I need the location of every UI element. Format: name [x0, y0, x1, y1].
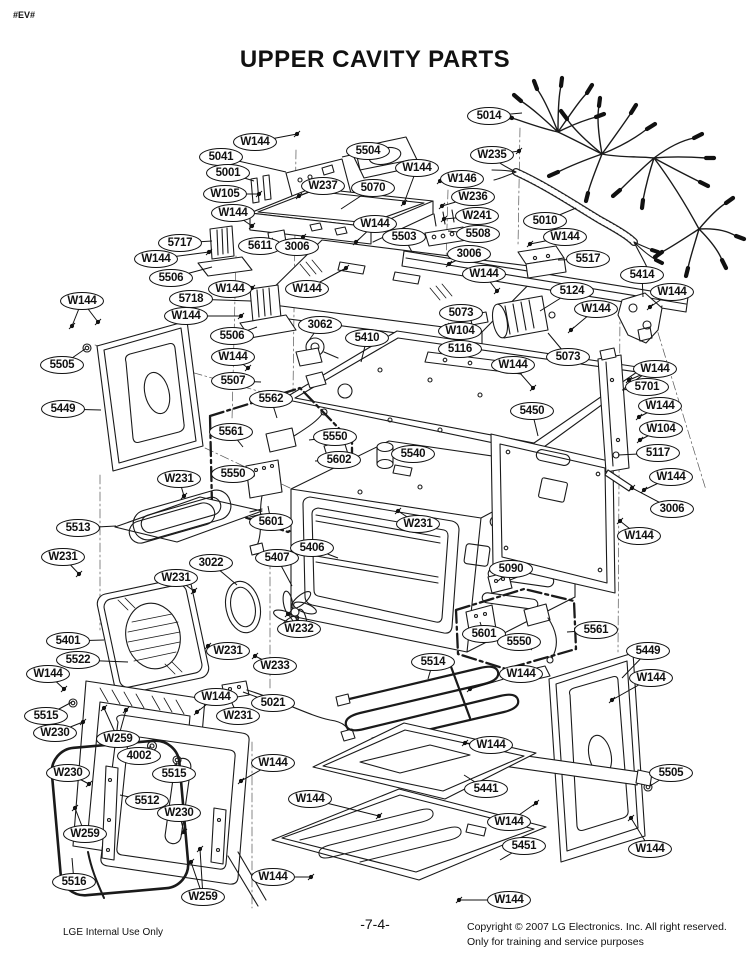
part-callout-W144: W144 — [134, 250, 178, 268]
part-callout-W104: W104 — [639, 420, 683, 438]
part-callout-W144: W144 — [288, 790, 332, 808]
part-callout-W144: W144 — [251, 868, 295, 886]
part-callout-5090: 5090 — [489, 560, 533, 578]
part-callout-W144: W144 — [285, 280, 329, 298]
part-callout-5021: 5021 — [251, 694, 295, 712]
part-callout-5407: 5407 — [255, 549, 299, 567]
part-callout-5540: 5540 — [391, 445, 435, 463]
part-callout-5701: 5701 — [625, 378, 669, 396]
part-callout-5001: 5001 — [206, 164, 250, 182]
part-callout-W105: W105 — [203, 185, 247, 203]
part-callout-W144: W144 — [26, 665, 70, 683]
part-callout-W104: W104 — [438, 322, 482, 340]
part-callout-W144: W144 — [649, 468, 693, 486]
part-callout-W144: W144 — [628, 840, 672, 858]
part-callout-5450: 5450 — [510, 402, 554, 420]
part-callout-3006: 3006 — [650, 500, 694, 518]
part-callout-W144: W144 — [194, 688, 238, 706]
part-callout-W144: W144 — [395, 159, 439, 177]
part-callout-5124: 5124 — [550, 282, 594, 300]
part-callout-5070: 5070 — [351, 179, 395, 197]
part-callout-3006: 3006 — [447, 245, 491, 263]
part-callout-5550: 5550 — [497, 633, 541, 651]
part-callout-W144: W144 — [629, 669, 673, 687]
part-callout-5504: 5504 — [346, 142, 390, 160]
part-callout-5550: 5550 — [313, 428, 357, 446]
part-callout-W231: W231 — [216, 707, 260, 725]
part-callout-W144: W144 — [208, 280, 252, 298]
part-callout-4002: 4002 — [117, 747, 161, 765]
part-callout-W259: W259 — [96, 730, 140, 748]
part-callout-W144: W144 — [633, 360, 677, 378]
part-callout-5517: 5517 — [566, 250, 610, 268]
part-callout-3006: 3006 — [275, 238, 319, 256]
part-callout-W144: W144 — [469, 736, 513, 754]
part-callout-5602: 5602 — [317, 451, 361, 469]
part-callout-W144: W144 — [574, 300, 618, 318]
part-callout-5561: 5561 — [209, 423, 253, 441]
part-callout-5513: 5513 — [56, 519, 100, 537]
part-callout-5561: 5561 — [574, 621, 618, 639]
part-callout-5117: 5117 — [636, 444, 680, 462]
part-callout-W144: W144 — [617, 527, 661, 545]
part-callout-5506: 5506 — [210, 327, 254, 345]
part-callout-W144: W144 — [638, 397, 682, 415]
part-callout-W235: W235 — [470, 146, 514, 164]
part-callout-3022: 3022 — [189, 554, 233, 572]
part-callout-W259: W259 — [63, 825, 107, 843]
part-callout-W144: W144 — [211, 204, 255, 222]
part-callout-5508: 5508 — [456, 225, 500, 243]
part-callout-5073: 5073 — [439, 304, 483, 322]
part-callout-5449: 5449 — [626, 642, 670, 660]
part-callout-W230: W230 — [33, 724, 77, 742]
part-callout-5451: 5451 — [502, 837, 546, 855]
part-callout-W144: W144 — [543, 228, 587, 246]
part-callout-W233: W233 — [253, 657, 297, 675]
part-callout-W231: W231 — [396, 515, 440, 533]
part-callout-W144: W144 — [491, 356, 535, 374]
part-callout-W144: W144 — [251, 754, 295, 772]
part-callout-5516: 5516 — [52, 873, 96, 891]
part-callout-5116: 5116 — [438, 340, 482, 358]
part-callout-5014: 5014 — [467, 107, 511, 125]
part-callout-W259: W259 — [181, 888, 225, 906]
manual-page: #EV# UPPER CAVITY PARTS — [0, 0, 750, 972]
part-callout-5449: 5449 — [41, 400, 85, 418]
part-callout-5718: 5718 — [169, 290, 213, 308]
part-callout-W144: W144 — [462, 265, 506, 283]
part-callout-5550: 5550 — [211, 465, 255, 483]
part-callout-5562: 5562 — [249, 390, 293, 408]
part-callout-5414: 5414 — [620, 266, 664, 284]
part-callout-W144: W144 — [211, 348, 255, 366]
part-callout-5503: 5503 — [382, 228, 426, 246]
part-callout-W144: W144 — [650, 283, 694, 301]
part-callout-W236: W236 — [451, 188, 495, 206]
part-callout-5515: 5515 — [24, 707, 68, 725]
part-callout-W144: W144 — [60, 292, 104, 310]
part-callout-W237: W237 — [301, 177, 345, 195]
part-callout-5410: 5410 — [345, 329, 389, 347]
part-callout-W231: W231 — [206, 642, 250, 660]
part-callout-3062: 3062 — [298, 316, 342, 334]
part-callout-W144: W144 — [487, 891, 531, 909]
part-callout-5041: 5041 — [199, 148, 243, 166]
part-callout-W144: W144 — [164, 307, 208, 325]
part-callout-5505: 5505 — [40, 356, 84, 374]
part-callout-W232: W232 — [277, 620, 321, 638]
part-callout-5401: 5401 — [46, 632, 90, 650]
part-callout-5441: 5441 — [464, 780, 508, 798]
part-callout-5507: 5507 — [211, 372, 255, 390]
part-callout-W231: W231 — [41, 548, 85, 566]
part-callout-W231: W231 — [154, 569, 198, 587]
part-callout-W144: W144 — [487, 813, 531, 831]
part-callout-W146: W146 — [440, 170, 484, 188]
part-callout-5601: 5601 — [249, 513, 293, 531]
part-callout-5506: 5506 — [149, 269, 193, 287]
part-callout-W144: W144 — [499, 665, 543, 683]
part-callout-5505: 5505 — [649, 764, 693, 782]
part-callout-5073: 5073 — [546, 348, 590, 366]
part-callout-W230: W230 — [46, 764, 90, 782]
part-callout-W241: W241 — [455, 207, 499, 225]
part-callout-W230: W230 — [157, 804, 201, 822]
callout-layer: W144504150015504W2375070W105W14456113006… — [0, 0, 750, 972]
part-callout-5515: 5515 — [152, 765, 196, 783]
part-callout-W231: W231 — [157, 470, 201, 488]
part-callout-5717: 5717 — [158, 234, 202, 252]
part-callout-5514: 5514 — [411, 653, 455, 671]
part-callout-W144: W144 — [233, 133, 277, 151]
